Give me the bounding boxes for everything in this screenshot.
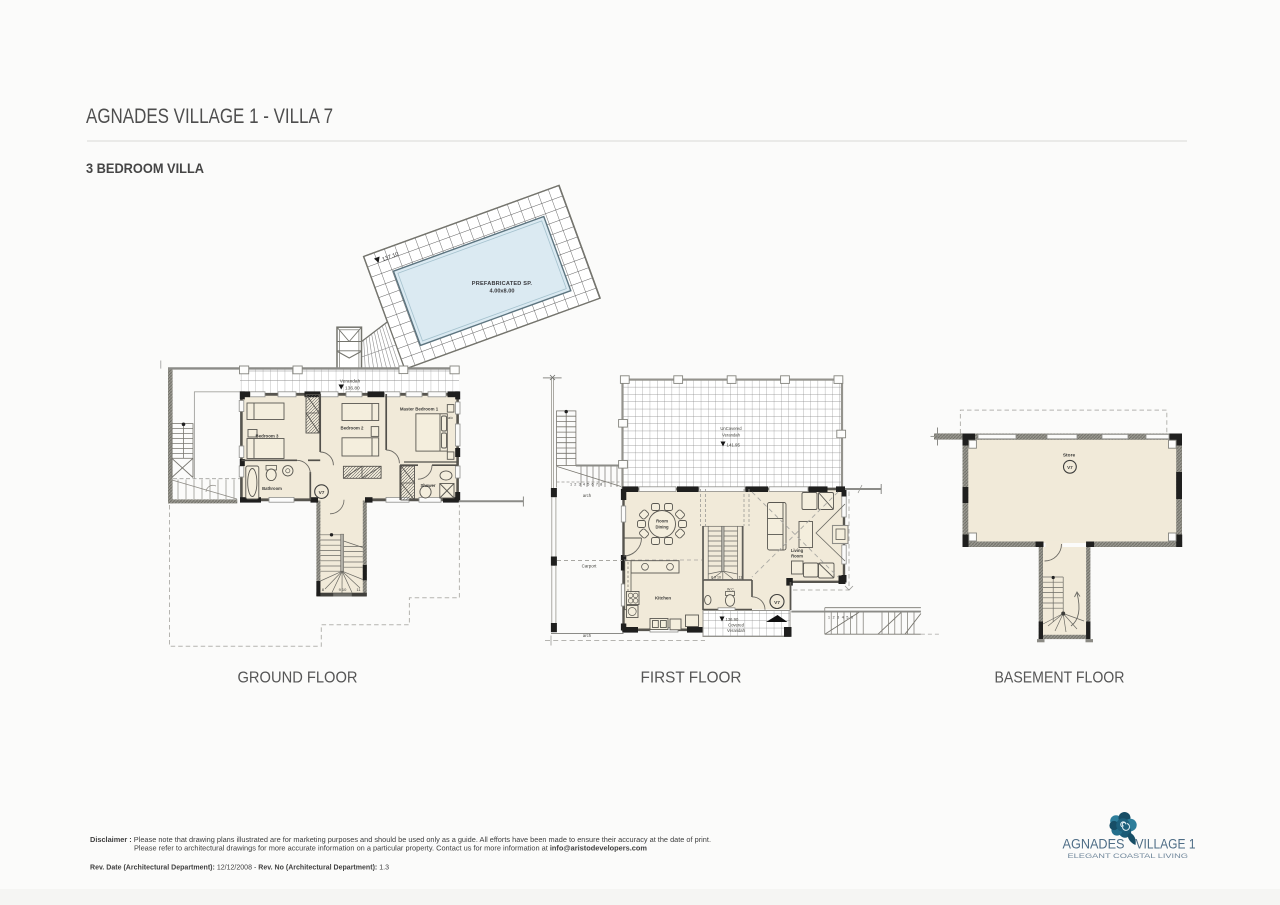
svg-text:PREFABRICATED SP.: PREFABRICATED SP. bbox=[472, 281, 533, 287]
svg-text:Covered: Covered bbox=[728, 623, 744, 628]
svg-text:Kitchen: Kitchen bbox=[655, 596, 671, 601]
svg-text:Verandah: Verandah bbox=[727, 628, 746, 633]
svg-text:Bathroom: Bathroom bbox=[262, 486, 282, 491]
svg-text:Dining: Dining bbox=[655, 525, 668, 530]
svg-text:8 9 10: 8 9 10 bbox=[711, 575, 721, 579]
svg-text:4.00x8.00: 4.00x8.00 bbox=[490, 289, 515, 295]
svg-text:Please refer to architectural: Please refer to architectural drawings f… bbox=[134, 843, 647, 852]
svg-text:Bedroom 3: Bedroom 3 bbox=[256, 434, 279, 439]
svg-text:12345678: 12345678 bbox=[570, 483, 605, 487]
svg-text:arch: arch bbox=[583, 493, 592, 498]
svg-text:Verandah: Verandah bbox=[722, 433, 741, 438]
svg-text:Room: Room bbox=[656, 519, 668, 524]
svg-text:VILLAGE 1: VILLAGE 1 bbox=[1136, 837, 1196, 852]
svg-text:Store: Store bbox=[1063, 453, 1076, 459]
svg-text:UnCovered: UnCovered bbox=[720, 426, 742, 431]
svg-text:141.95: 141.95 bbox=[727, 442, 741, 447]
svg-text:AGNADES VILLAGE 1 - VILLA 7: AGNADES VILLAGE 1 - VILLA 7 bbox=[86, 104, 333, 128]
svg-text:a/c: a/c bbox=[448, 416, 453, 420]
svg-text:136.90: 136.90 bbox=[726, 617, 739, 622]
svg-text:Master Bedroom 1: Master Bedroom 1 bbox=[400, 407, 439, 412]
svg-text:123456: 123456 bbox=[828, 616, 856, 620]
svg-text:V7: V7 bbox=[319, 490, 325, 496]
svg-text:V7: V7 bbox=[774, 600, 780, 606]
svg-text:V7: V7 bbox=[1067, 465, 1073, 470]
svg-text:3 BEDROOM VILLA: 3 BEDROOM VILLA bbox=[86, 160, 204, 176]
svg-text:Verandah: Verandah bbox=[340, 379, 361, 385]
svg-text:Rev. Date (Architectural Depar: Rev. Date (Architectural Department): 12… bbox=[90, 863, 389, 872]
svg-text:11: 11 bbox=[739, 575, 743, 579]
svg-text:Carport: Carport bbox=[582, 563, 597, 568]
svg-text:Room: Room bbox=[791, 554, 803, 559]
svg-text:Shower: Shower bbox=[420, 483, 435, 488]
svg-text:BASEMENT FLOOR: BASEMENT FLOOR bbox=[995, 670, 1125, 687]
svg-text:GROUND FLOOR: GROUND FLOOR bbox=[238, 670, 358, 687]
svg-text:FIRST FLOOR: FIRST FLOOR bbox=[641, 670, 742, 687]
svg-text:W.C.: W.C. bbox=[727, 587, 735, 591]
svg-text:AGNADES: AGNADES bbox=[1063, 837, 1125, 852]
svg-text:136.80: 136.80 bbox=[345, 385, 360, 391]
svg-text:9 10: 9 10 bbox=[339, 587, 348, 592]
svg-text:Living: Living bbox=[791, 548, 804, 553]
svg-text:ELEGANT COASTAL LIVING: ELEGANT COASTAL LIVING bbox=[1068, 853, 1189, 860]
svg-text:Bedroom 2: Bedroom 2 bbox=[341, 426, 364, 431]
